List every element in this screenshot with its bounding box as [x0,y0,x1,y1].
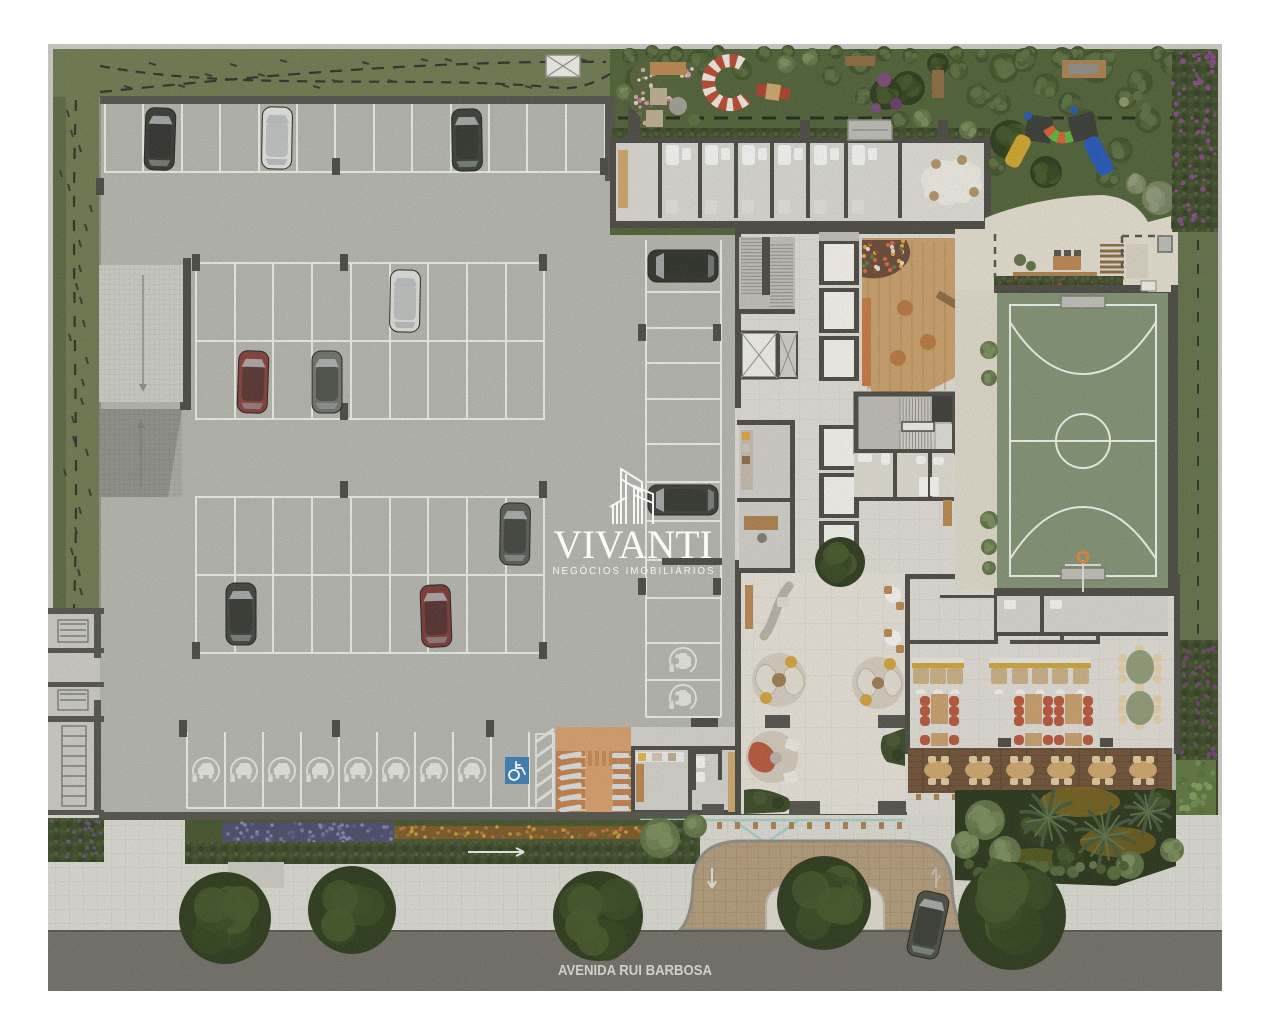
svg-text:VIVANTI: VIVANTI [554,522,713,567]
svg-text:NEGÓCIOS IMOBILIÁRIOS: NEGÓCIOS IMOBILIÁRIOS [553,564,716,577]
